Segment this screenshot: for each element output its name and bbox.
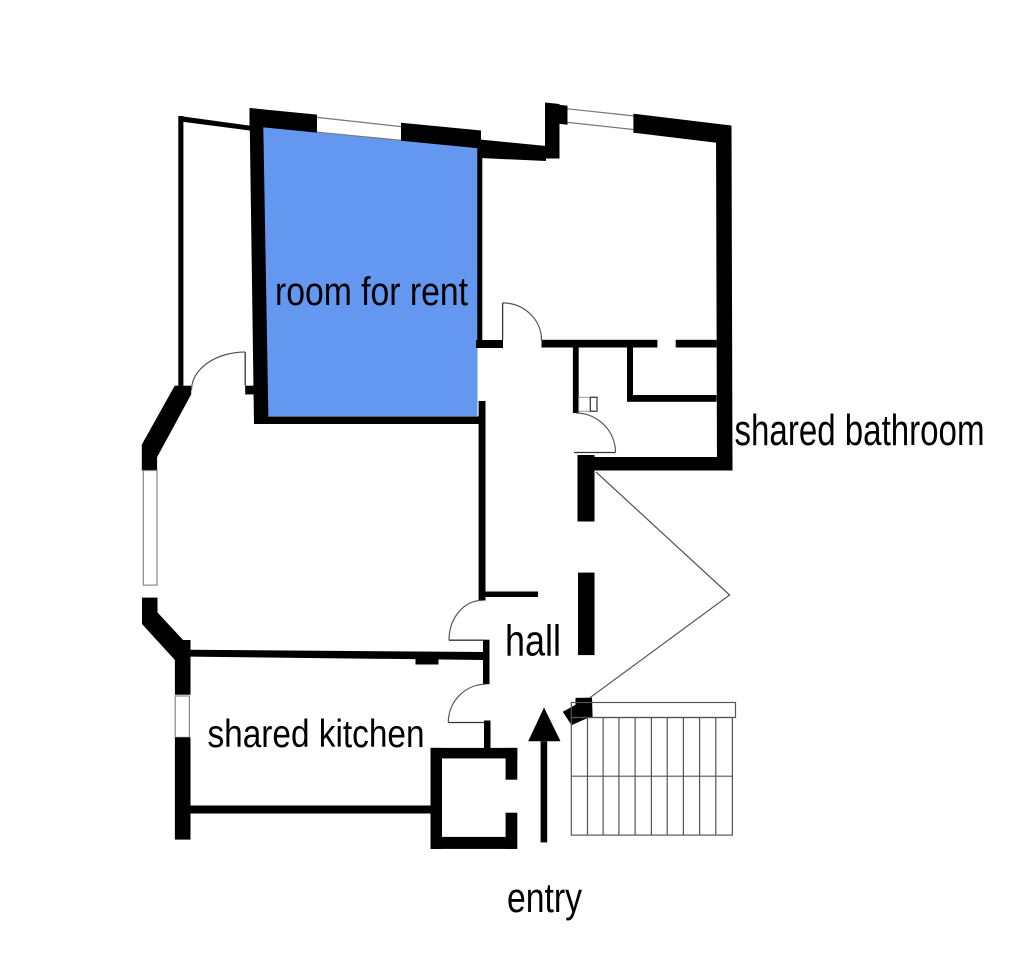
svg-text:hall: hall xyxy=(505,617,561,666)
svg-text:entry: entry xyxy=(507,874,582,921)
svg-text:shared kitchen: shared kitchen xyxy=(208,713,425,756)
svg-text:shared bathroom: shared bathroom xyxy=(735,406,985,455)
svg-text:room for rent: room for rent xyxy=(275,270,468,314)
